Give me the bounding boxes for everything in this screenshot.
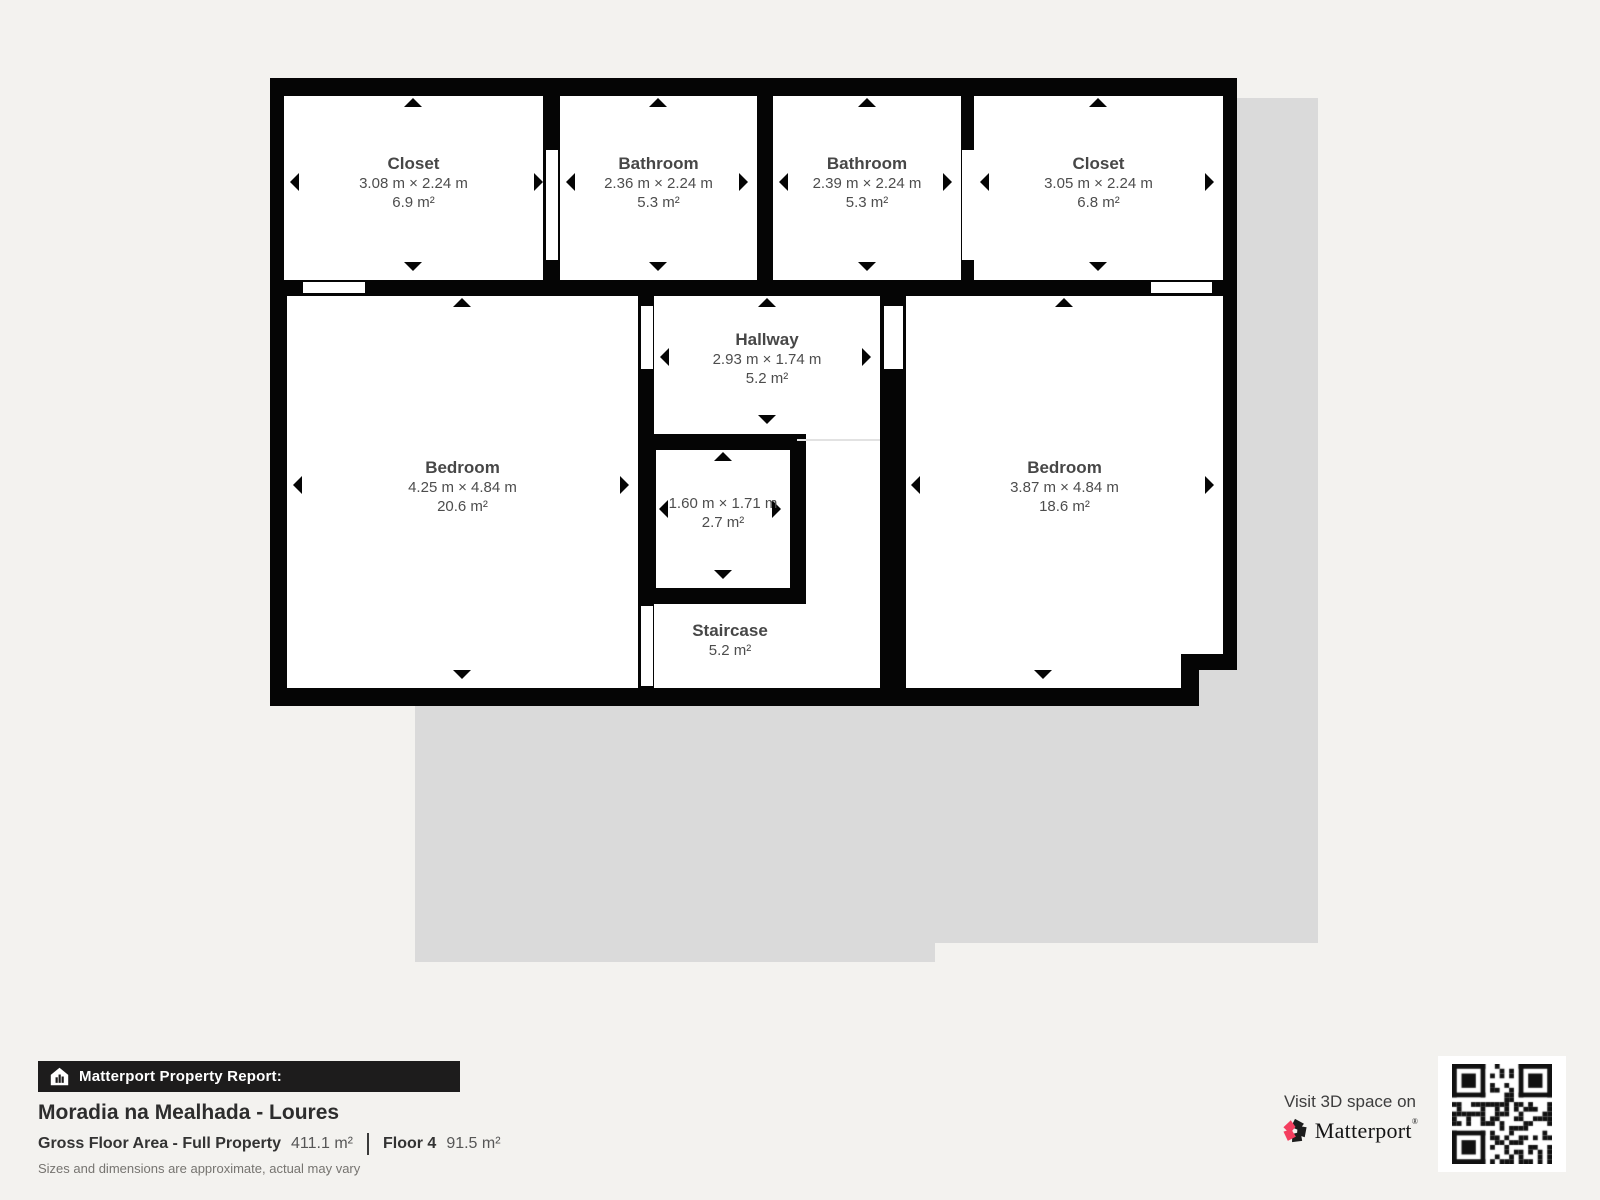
- room-name: Closet: [388, 153, 440, 174]
- report-bar-label: Matterport Property Report:: [79, 1068, 282, 1085]
- room-dimensions: 1.60 m × 1.71 m: [669, 494, 778, 513]
- gfa-label: Gross Floor Area - Full Property: [38, 1135, 281, 1153]
- room-area: 5.3 m²: [637, 193, 680, 212]
- room-label-bedroom-right: Bedroom 3.87 m × 4.84 m 18.6 m²: [906, 290, 1223, 682]
- door-opening-closet-left-bathroom: [546, 150, 558, 260]
- room-label-hallway: Hallway 2.93 m × 1.74 m 5.2 m²: [654, 290, 880, 427]
- matterport-wordmark: Matterport®: [1315, 1117, 1418, 1144]
- room-area: 6.9 m²: [392, 193, 435, 212]
- floor-label: Floor 4: [383, 1135, 436, 1153]
- room-label-stair-core: 1.60 m × 1.71 m 2.7 m²: [656, 444, 790, 582]
- room-dimensions: 2.93 m × 1.74 m: [713, 350, 822, 369]
- room-label-closet-right: Closet 3.05 m × 2.24 m 6.8 m²: [974, 90, 1223, 274]
- room-dimensions: 4.25 m × 4.84 m: [408, 478, 517, 497]
- room-dimensions: 2.36 m × 2.24 m: [604, 174, 713, 193]
- property-report-page: Closet 3.08 m × 2.24 m 6.9 m² Bathroom 2…: [0, 0, 1600, 1200]
- room-label-staircase: Staircase 5.2 m²: [654, 598, 806, 682]
- room-area: 20.6 m²: [437, 497, 488, 516]
- room-dimensions: 3.87 m × 4.84 m: [1010, 478, 1119, 497]
- stats-divider: [367, 1133, 369, 1155]
- house-chart-icon: [50, 1067, 69, 1086]
- visit-3d-text: Visit 3D space on: [1250, 1092, 1450, 1112]
- gfa-value: 411.1 m²: [291, 1135, 353, 1153]
- qr-code-card: [1438, 1056, 1566, 1172]
- room-label-bathroom-left: Bathroom 2.36 m × 2.24 m 5.3 m²: [560, 90, 757, 274]
- room-name: Hallway: [735, 329, 798, 350]
- qr-code: [1452, 1064, 1552, 1164]
- matterport-pinwheel-icon: [1282, 1118, 1308, 1144]
- room-area: 2.7 m²: [702, 513, 745, 532]
- area-stats: Gross Floor Area - Full Property 411.1 m…: [38, 1133, 838, 1155]
- door-opening-staircase-bedroom-left: [641, 606, 653, 686]
- room-name: Bedroom: [425, 457, 500, 478]
- room-name: Bedroom: [1027, 457, 1102, 478]
- door-opening-hallway-bedroom-left: [641, 306, 653, 369]
- room-area: 5.3 m²: [846, 193, 889, 212]
- room-label-bedroom-left: Bedroom 4.25 m × 4.84 m 20.6 m²: [287, 290, 638, 682]
- room-label-closet-left: Closet 3.08 m × 2.24 m 6.9 m²: [284, 90, 543, 274]
- room-area: 6.8 m²: [1077, 193, 1120, 212]
- room-name: Staircase: [692, 620, 768, 641]
- trademark-mark: ®: [1412, 1117, 1418, 1126]
- floor-value: 91.5 m²: [446, 1135, 500, 1153]
- door-opening-bathroom-closet-right: [962, 150, 974, 260]
- floor-footprint-shadow-bottom-left: [415, 706, 935, 962]
- room-dimensions: 3.05 m × 2.24 m: [1044, 174, 1153, 193]
- room-area: 5.2 m²: [709, 641, 752, 660]
- door-opening-hallway-bedroom-right: [884, 306, 903, 369]
- room-name: Closet: [1073, 153, 1125, 174]
- room-area: 18.6 m²: [1039, 497, 1090, 516]
- disclaimer-text: Sizes and dimensions are approximate, ac…: [38, 1161, 638, 1176]
- room-dimensions: 3.08 m × 2.24 m: [359, 174, 468, 193]
- room-label-bathroom-right: Bathroom 2.39 m × 2.24 m 5.3 m²: [773, 90, 961, 274]
- room-name: Bathroom: [827, 153, 907, 174]
- floor-footprint-shadow-bottom-right: [935, 706, 1318, 943]
- room-name: Bathroom: [618, 153, 698, 174]
- report-header-bar: Matterport Property Report:: [38, 1061, 460, 1092]
- open-boundary-line: [797, 439, 880, 441]
- room-area: 5.2 m²: [746, 369, 789, 388]
- matterport-logo: Matterport®: [1250, 1117, 1450, 1144]
- property-title: Moradia na Mealhada - Loures: [38, 1101, 738, 1125]
- room-dimensions: 2.39 m × 2.24 m: [813, 174, 922, 193]
